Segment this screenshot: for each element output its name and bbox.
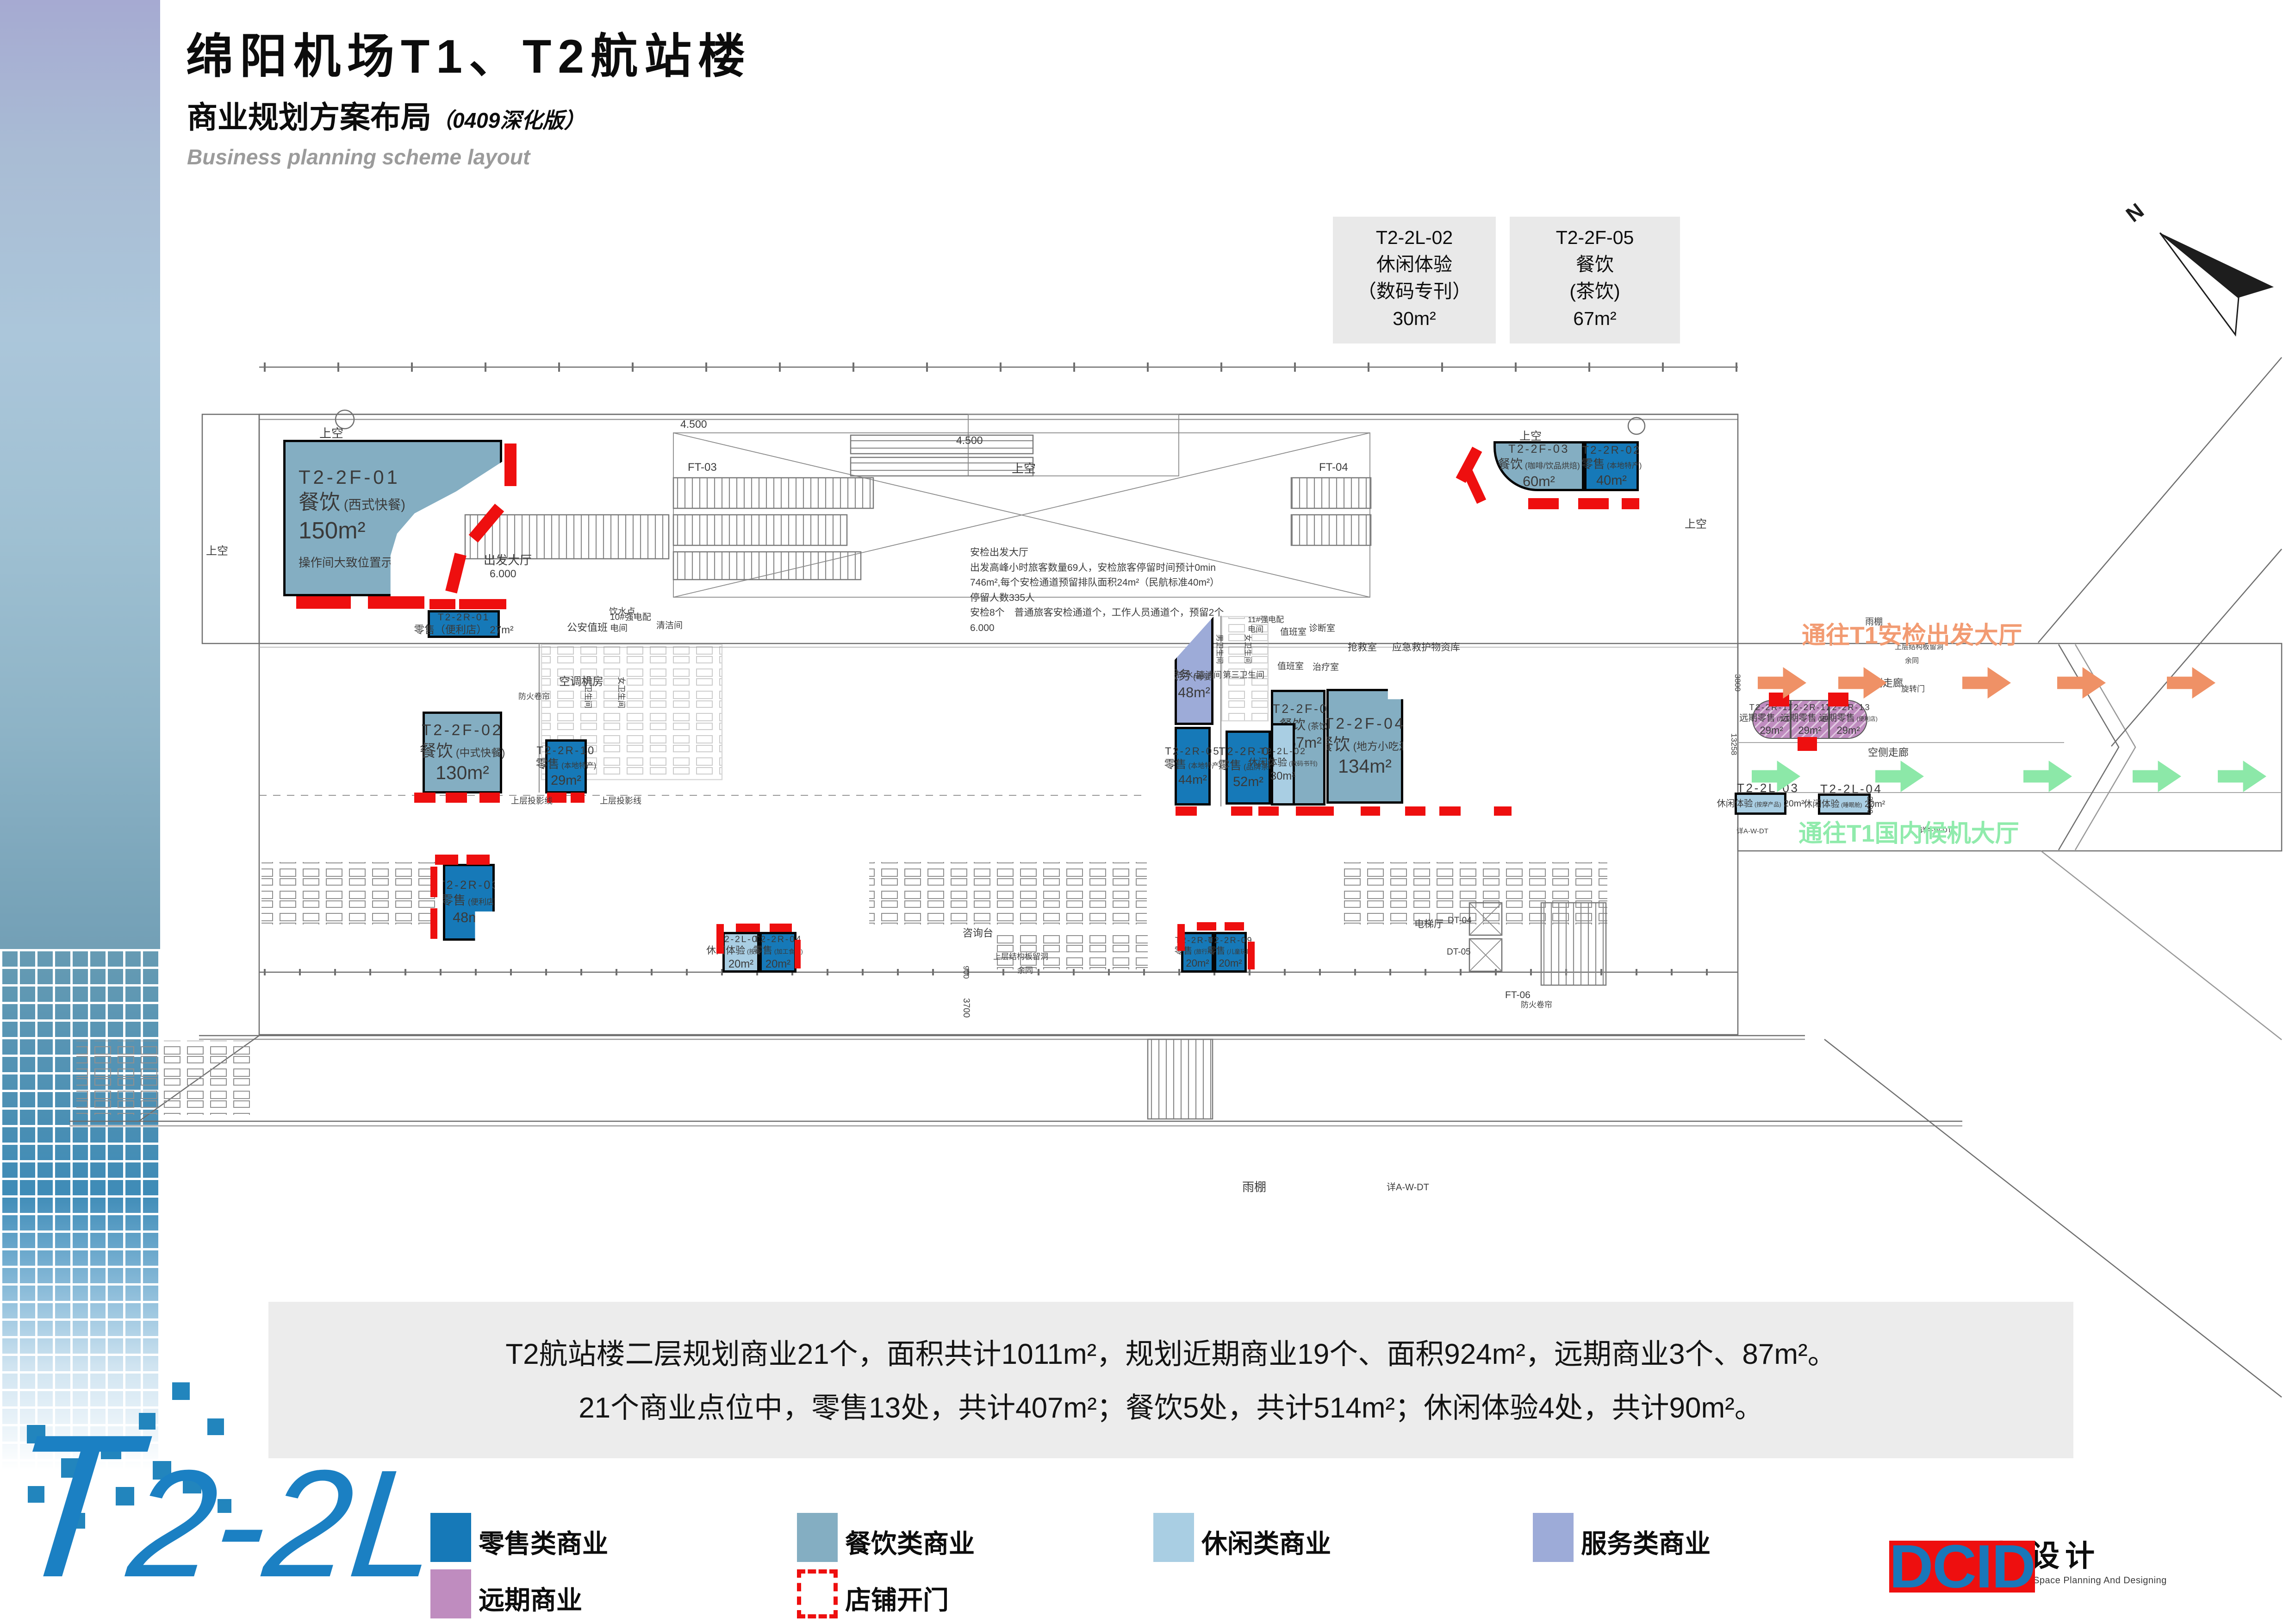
- route-note: 通往T1安检出发大厅: [1802, 616, 2022, 650]
- plan-label: DT-04: [1448, 916, 1472, 926]
- zone-subtype: (本地特产): [1605, 462, 1642, 470]
- zone-subtype: (中式快餐): [453, 747, 505, 759]
- zone-area: 52m²: [1218, 774, 1279, 790]
- callout-T2-2F-05: T2-2F-05餐饮(茶饮)67m²: [1510, 217, 1680, 344]
- store-door-mark: [1439, 806, 1461, 816]
- zone-name: 零售 (儿童玩具): [1207, 945, 1253, 956]
- security-hall-annotation: 安检出发大厅出发高峰小时旅客数量69人，安检旅客停留时间预计0min746m²,…: [970, 545, 1224, 636]
- north-arrow-icon: [2160, 233, 2274, 335]
- zone-label: T2-2F-01餐饮 (西式快餐)150m²操作间大致位置示意: [286, 465, 405, 571]
- callout-line: 30m²: [1333, 305, 1496, 332]
- plan-label: 男卫生间: [1215, 634, 1226, 664]
- callout-T2-2L-02: T2-2L-02休闲体验（数码专刊）30m²: [1333, 217, 1496, 344]
- plan-label: 第三卫生间: [1223, 668, 1264, 681]
- zone-T2-2R-10: T2-2R-10零售 (本地特产)29m²: [545, 739, 587, 793]
- legend-label-leisure: 休闲类商业: [1201, 1523, 1331, 1561]
- plan-label: 3700: [961, 998, 971, 1018]
- plan-label: 治疗室: [1313, 660, 1339, 673]
- zone-T2-2F-04: T2-2F-04餐饮 (地方小吃汇)134m²: [1326, 689, 1403, 804]
- summary-line-2: 21个商业点位中，零售13处，共计407m²；餐饮5处，共计514m²；休闲体验…: [268, 1384, 2073, 1426]
- callout-line: (茶饮): [1510, 278, 1680, 305]
- legend-label-service: 服务类商业: [1581, 1523, 1711, 1561]
- plan-label: 防火卷帘: [518, 690, 550, 701]
- store-door-mark: [435, 855, 458, 865]
- zone-T2-2R-06: T2-2R-06零售 (品牌茶叶)52m²: [1226, 731, 1271, 805]
- summary-band: T2航站楼二层规划商业21个，面积共计1011m²，规划近期商业19个、面积92…: [268, 1302, 2073, 1458]
- zone-T2-2R-04: T2-2R-04零售 (加工食品)20m²: [759, 932, 796, 973]
- zone-name: 零售（便利店） 27m²: [414, 624, 513, 637]
- store-door-mark: [467, 855, 490, 865]
- zone-label: T2-2R-02零售 (本地特产)40m²: [1581, 443, 1642, 489]
- legend-swatch-retail: [430, 1513, 471, 1562]
- zone-T2-2L-03: T2-2L-03休闲体验 (按摩产品) 20m²: [1735, 793, 1786, 815]
- zone-note: 操作间大致位置示意: [299, 556, 405, 571]
- plan-label: 男卫生间: [583, 677, 595, 708]
- store-door-mark: [296, 596, 351, 609]
- plan-label: 女卫生间: [616, 677, 628, 708]
- zone-T2-2L-02: T2-2L-02休闲体验 (数码书刊)30m²: [1271, 723, 1295, 806]
- zone-id: T2-2R-09: [1207, 935, 1253, 946]
- plan-label: 空调机房: [559, 672, 604, 688]
- store-door-mark: [1578, 498, 1609, 509]
- store-door-mark: [795, 940, 801, 968]
- plan-label: 雨棚: [1242, 1178, 1266, 1195]
- plan-label: DT-05: [1447, 947, 1471, 957]
- store-door-mark: [430, 867, 437, 897]
- zone-T2-2R-09: T2-2R-09零售 (儿童玩具)20m²: [1214, 932, 1247, 973]
- zone-name: 零售 (本地特产): [1581, 457, 1642, 472]
- zone-area: 130m²: [420, 761, 505, 785]
- floor-code: T2-2L: [0, 1425, 447, 1588]
- zone-T2-2L-04: T2-2L-04休闲体验 (睡眠舱) 20m²: [1818, 793, 1871, 815]
- zone-area: 40m²: [1581, 472, 1642, 489]
- route-note: 通往T1国内候机大厅: [1798, 814, 2019, 849]
- legend-swatch-leisure: [1153, 1513, 1194, 1562]
- plan-label: 6.000: [490, 568, 516, 580]
- zone-T2-2F-02: T2-2F-02餐饮 (中式快餐)130m²: [423, 712, 502, 793]
- zone-name: 零售 (品牌茶叶): [1218, 759, 1279, 774]
- plan-label: 清洁间: [1197, 668, 1222, 681]
- plan-label: 旋转门: [1901, 682, 1925, 694]
- zone-id: T2-2F-02: [420, 721, 505, 740]
- plan-label: 抢救室: [1348, 640, 1377, 654]
- store-door-mark: [571, 793, 585, 803]
- store-door-mark: [479, 793, 500, 803]
- store-door-mark: [716, 924, 724, 954]
- plan-label: 上层投影线: [511, 794, 553, 806]
- plan-label: 详A-W-DT: [1736, 826, 1768, 836]
- plan-label: 清洁间: [656, 618, 683, 631]
- plan-label: 应急救护物资库: [1392, 640, 1460, 654]
- zone-subtype: (咖啡/饮品烘焙): [1523, 462, 1580, 470]
- plan-label: 13258: [1729, 733, 1738, 755]
- floor-code-rest: 2-2L: [122, 1438, 446, 1609]
- annotation-line: 安检8个 普通旅客安检通道个，工作人员通道个，预留2个: [970, 606, 1224, 621]
- store-door-mark: [1622, 498, 1639, 509]
- plan-label: 900: [961, 966, 971, 979]
- callout-line: T2-2F-05: [1510, 224, 1680, 251]
- zone-T2-2R-12: T2-2R-12远期零售 (便利店)29m²: [1791, 700, 1829, 739]
- zone-name: 餐饮 (中式快餐): [420, 740, 505, 761]
- plan-label: 防火卷帘: [1521, 998, 1552, 1010]
- zone-area: 134m²: [1317, 755, 1413, 778]
- legend-swatch-future: [430, 1569, 471, 1618]
- legend-swatch-door: [797, 1569, 838, 1618]
- plan-label: 上空: [319, 424, 343, 441]
- zone-T2-2R-08: T2-2R-08零售 (旅行用品)20m²: [1181, 932, 1214, 973]
- plan-label: 电梯厅: [1414, 917, 1444, 931]
- annotation-line: 746m²,每个安检通道预留排队面积24m²（民航标准40m²）: [970, 575, 1224, 591]
- callout-line: T2-2L-02: [1333, 224, 1496, 251]
- plan-label: 上空: [1012, 459, 1036, 476]
- plan-label: 上层结构板留洞: [993, 950, 1048, 962]
- zone-subtype: (便利店): [466, 898, 497, 906]
- plan-label: FT-03: [688, 461, 717, 474]
- annotation-line: 6.000: [970, 621, 1224, 636]
- legend-swatch-service: [1533, 1513, 1574, 1562]
- store-door-mark: [429, 599, 455, 609]
- plan-label: 女卫生间: [1243, 634, 1254, 664]
- annotation-line: 出发高峰小时旅客数量69人，安检旅客停留时间预计0min: [970, 561, 1224, 576]
- legend-label-retail: 零售类商业: [479, 1523, 608, 1561]
- callout-line: 餐饮: [1510, 251, 1680, 278]
- plan-label: 空侧走廊: [1868, 744, 1909, 759]
- plan-label: 咨询台: [963, 925, 993, 940]
- zone-id: T2-2F-03: [1498, 442, 1580, 457]
- store-door-mark: [1798, 737, 1817, 751]
- store-door-mark: [1176, 806, 1197, 816]
- floor-code-t: T: [0, 1393, 145, 1620]
- store-door-mark: [1828, 693, 1848, 706]
- callout-line: （数码专刊）: [1333, 278, 1496, 305]
- store-door-mark: [414, 793, 436, 803]
- store-door-mark: [1296, 806, 1334, 816]
- zone-area: 20m²: [1207, 957, 1253, 970]
- zone-name: 餐饮 (西式快餐): [299, 489, 405, 515]
- plan-label: 值班室: [1280, 625, 1307, 637]
- legend-label-future: 远期商业: [479, 1580, 582, 1617]
- store-door-mark: [1258, 806, 1279, 816]
- zone-area: 150m²: [299, 516, 405, 545]
- callout-line: 休闲体验: [1333, 251, 1496, 278]
- store-door-mark: [1231, 806, 1252, 816]
- annotation-line: 安检出发大厅: [970, 545, 1224, 561]
- dcid-logo: DCID 鼎诚规划设计 Specialize In Airport Commer…: [1889, 1541, 2167, 1586]
- legend-swatch-dining: [797, 1513, 838, 1562]
- plan-label: 上空: [1519, 427, 1542, 443]
- plan-label: 饮水点: [609, 605, 635, 617]
- store-door-mark: [1197, 922, 1216, 931]
- plan-label: 出发大厅: [484, 551, 532, 568]
- store-door-mark: [1528, 498, 1559, 509]
- plan-label: 余同: [1017, 964, 1033, 975]
- store-door-mark: [1494, 806, 1512, 816]
- zone-label: T2-2F-04餐饮 (地方小吃汇)134m²: [1317, 714, 1413, 778]
- store-door-mark: [1225, 922, 1244, 931]
- slide: 绵阳机场T1、T2航站楼 商业规划方案布局（0409深化版） Business …: [0, 0, 2296, 1624]
- plan-label: 公安值班: [567, 619, 608, 634]
- zone-name: 餐饮 (咖啡/饮品烘焙): [1498, 457, 1580, 473]
- store-door-mark: [770, 924, 792, 932]
- zone-id: T2-2R-01: [414, 612, 513, 624]
- plan-label: 4.500: [680, 418, 707, 431]
- plan-label: FT-04: [1319, 461, 1348, 474]
- plan-label: 上空: [1685, 515, 1707, 531]
- zone-subtype: (按摩产品): [1753, 801, 1781, 808]
- plan-label: 诊断室: [1309, 621, 1335, 634]
- zone-subtype: (睡眠舱): [1840, 802, 1862, 808]
- legend-label-dining: 餐饮类商业: [845, 1523, 975, 1561]
- plan-label: 3800: [1733, 674, 1742, 692]
- annotation-line: 停留人数335人: [970, 591, 1224, 606]
- zone-T2-2R-02: T2-2R-02零售 (本地特产)40m²: [1584, 441, 1639, 491]
- plan-label: 上空: [206, 542, 228, 558]
- store-door-mark: [1248, 942, 1255, 969]
- plan-label: 2000: [1865, 796, 1874, 814]
- zone-T2-2L-01: T2-2L-01休闲体验 (按摩产品)20m²: [722, 932, 759, 973]
- zone-id: T2-2R-02: [1581, 443, 1642, 457]
- zone-label: T2-2R-01零售（便利店） 27m²: [414, 612, 513, 637]
- plan-label: 值班室: [1277, 659, 1304, 672]
- store-door-mark: [736, 924, 760, 932]
- plan-label: 4.500: [956, 434, 983, 447]
- zone-id: T2-2R-06: [1218, 745, 1279, 759]
- zone-label: T2-2R-06零售 (品牌茶叶)52m²: [1218, 745, 1279, 790]
- store-door-mark: [1361, 806, 1380, 816]
- legend-label-door: 店铺开门: [845, 1580, 949, 1617]
- store-door-mark: [459, 599, 506, 609]
- zone-label: T2-2F-02餐饮 (中式快餐)130m²: [420, 721, 505, 785]
- zone-id: T2-2R-03: [438, 878, 500, 893]
- plan-label: 余同: [1905, 656, 1919, 665]
- zone-T2-2R-05: T2-2R-05零售 (本地特产)44m²: [1175, 727, 1211, 806]
- summary-line-1: T2航站楼二层规划商业21个，面积共计1011m²，规划近期商业19个、面积92…: [268, 1330, 2073, 1372]
- zone-id: T2-2F-04: [1317, 714, 1413, 734]
- store-door-mark: [368, 596, 424, 609]
- zone-T2-2R-01: T2-2R-01零售（便利店） 27m²: [428, 610, 500, 638]
- dcid-logo-mark: DCID: [1889, 1541, 2035, 1593]
- zone-name: 餐饮 (地方小吃汇): [1317, 734, 1413, 755]
- plan-label: 详A-W-DT: [1387, 1180, 1429, 1193]
- zone-subtype: (西式快餐): [340, 498, 405, 512]
- zone-name: 零售 (便利店): [438, 893, 500, 909]
- zone-id: T2-2F-01: [299, 465, 405, 490]
- zone-label: T2-2R-09零售 (儿童玩具)20m²: [1207, 935, 1253, 970]
- store-door-mark: [1405, 806, 1425, 816]
- store-door-mark: [1177, 924, 1185, 951]
- store-door-mark: [504, 443, 516, 486]
- callout-line: 67m²: [1510, 305, 1680, 332]
- store-door-mark: [446, 793, 467, 803]
- plan-label: 上层投影线: [600, 794, 641, 806]
- store-door-mark: [430, 908, 437, 939]
